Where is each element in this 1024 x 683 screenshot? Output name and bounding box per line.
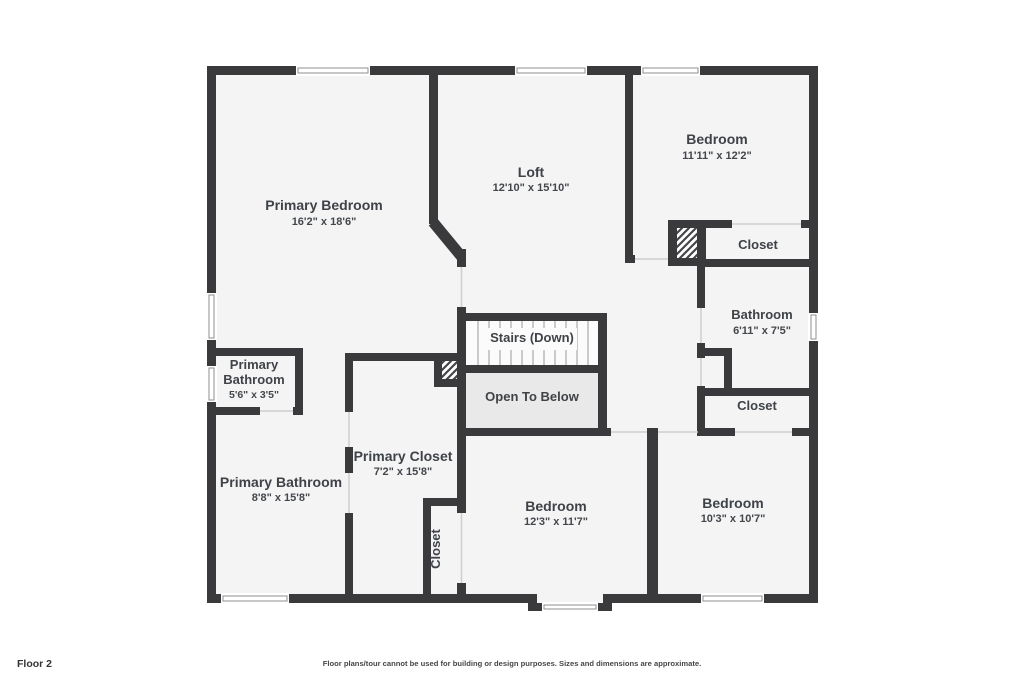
room-dims-primary-closet: 7'2" x 15'8" — [374, 466, 432, 478]
stairs-label: Stairs (Down) — [490, 330, 574, 345]
window — [701, 593, 764, 604]
room-dims-bathroom-right: 6'11" x 7'5" — [733, 325, 791, 337]
room-label-loft: Loft — [518, 164, 545, 180]
window — [296, 65, 370, 76]
room-dims-bedroom-bottom-right: 10'3" x 10'7" — [701, 513, 766, 525]
room-dims-loft: 12'10" x 15'10" — [493, 182, 570, 194]
window — [206, 293, 217, 340]
room-label-primary-bathroom-small-line1: Primary — [230, 357, 279, 372]
room-dims-primary-bedroom: 16'2" x 18'6" — [292, 216, 357, 228]
window — [542, 602, 598, 612]
room-dims-bedroom-bottom-center: 12'3" x 11'7" — [524, 516, 588, 528]
window — [515, 65, 587, 76]
room-label-closet-vertical: Closet — [428, 528, 443, 568]
room-label-primary-closet: Primary Closet — [354, 448, 453, 464]
room-dims-primary-bathroom: 8'8" x 15'8" — [252, 492, 310, 504]
floor-plan: Primary Bedroom 16'2" x 18'6" Loft 12'10… — [0, 0, 1024, 683]
room-label-closet-right: Closet — [737, 398, 777, 413]
window — [808, 313, 819, 341]
window — [206, 366, 217, 402]
disclaimer-text: Floor plans/tour cannot be used for buil… — [323, 659, 701, 668]
room-dims-primary-bathroom-small: 5'6" x 3'5" — [229, 389, 279, 401]
floor-label: Floor 2 — [17, 658, 52, 670]
room-label-bedroom-bottom-center: Bedroom — [525, 498, 586, 514]
room-label-bedroom-top-right: Bedroom — [686, 131, 747, 147]
room-label-primary-bedroom: Primary Bedroom — [265, 197, 382, 213]
room-dims-bedroom-top-right: 11'11" x 12'2" — [682, 150, 752, 162]
window — [221, 593, 289, 604]
room-label-bedroom-bottom-right: Bedroom — [702, 495, 763, 511]
shaft-hatch-top-right — [677, 228, 697, 258]
room-label-closet-top-right: Closet — [738, 237, 778, 252]
room-label-primary-bathroom: Primary Bathroom — [220, 474, 342, 490]
room-label-primary-bathroom-small-line2: Bathroom — [223, 372, 284, 387]
room-label-bathroom-right: Bathroom — [731, 307, 792, 322]
window — [641, 65, 700, 76]
shaft-hatch-stairs — [442, 361, 457, 379]
open-to-below-label: Open To Below — [485, 389, 580, 404]
